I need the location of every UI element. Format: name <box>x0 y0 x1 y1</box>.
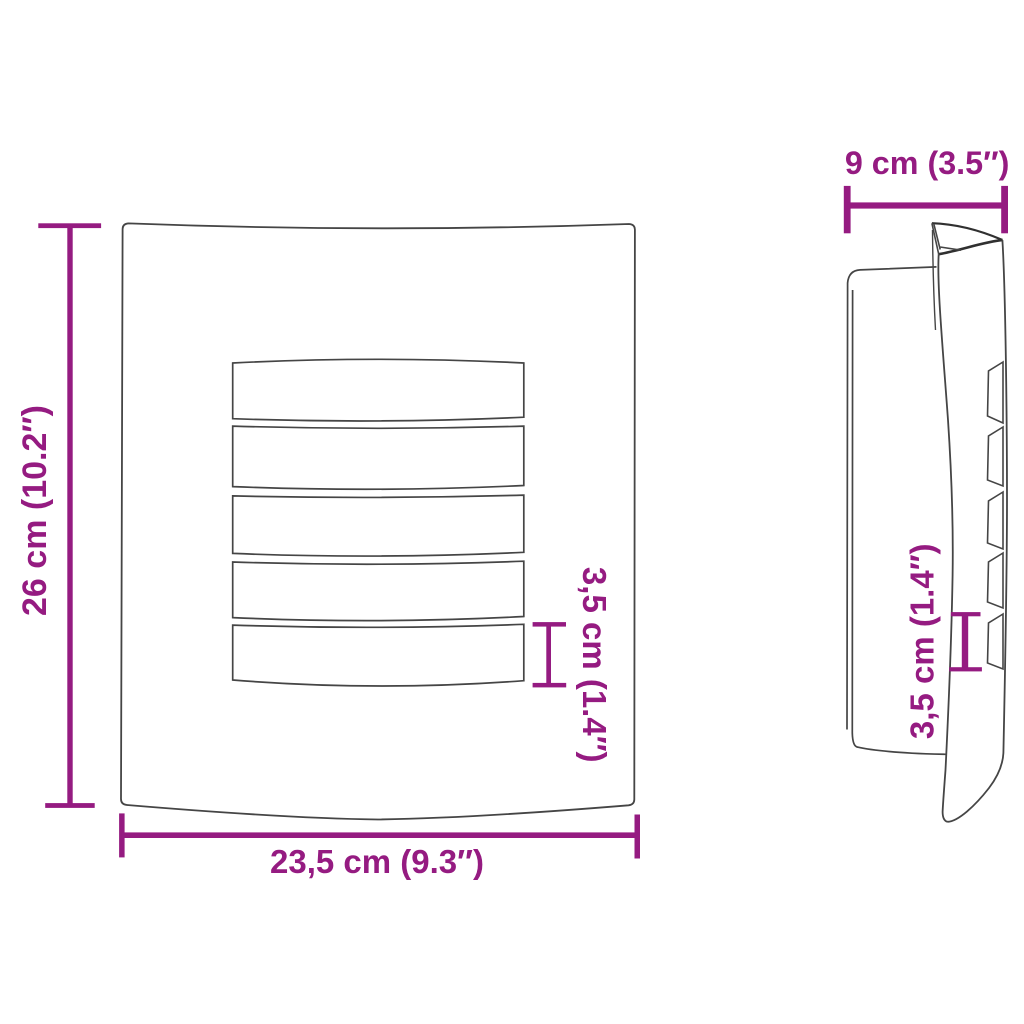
svg-text:9 cm (3.5″): 9 cm (3.5″) <box>845 145 1009 181</box>
svg-text:3,5 cm (1.4″): 3,5 cm (1.4″) <box>904 544 941 740</box>
svg-text:26 cm (10.2″): 26 cm (10.2″) <box>16 405 54 616</box>
svg-text:23,5 cm (9.3″): 23,5 cm (9.3″) <box>270 843 484 880</box>
svg-text:3,5 cm (1.4″): 3,5 cm (1.4″) <box>576 567 613 763</box>
